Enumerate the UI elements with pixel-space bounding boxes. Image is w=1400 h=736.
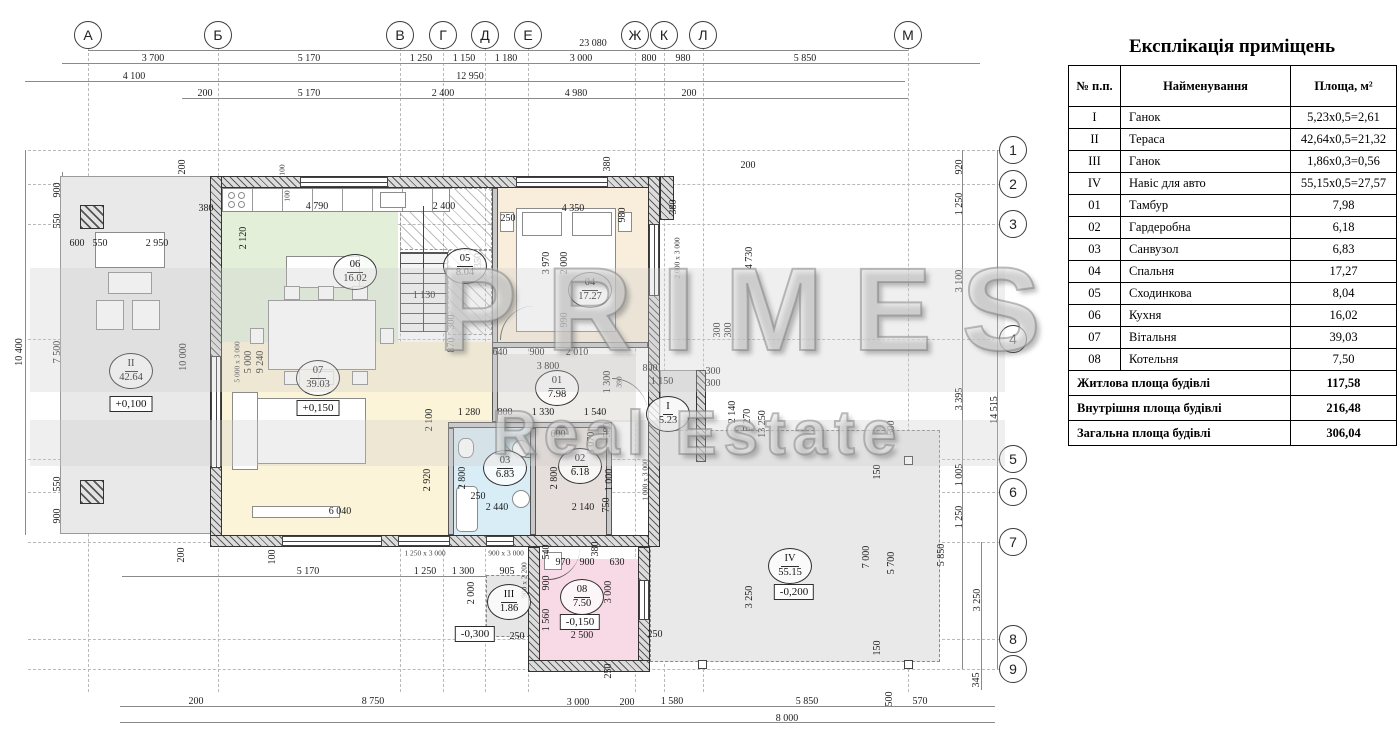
dimension-line bbox=[120, 722, 995, 723]
dimension-label: 1 280 bbox=[458, 408, 481, 418]
window bbox=[398, 536, 450, 546]
table-cell: Навіс для авто bbox=[1121, 173, 1291, 195]
axis-circle-top: Ж bbox=[621, 21, 649, 49]
table-cell: Котельня bbox=[1121, 349, 1291, 371]
axis-circle-top: К bbox=[650, 21, 678, 49]
summary-value: 306,04 bbox=[1291, 421, 1397, 446]
pillow bbox=[522, 212, 562, 236]
dimension-line bbox=[88, 50, 908, 51]
table-cell: Санвузол bbox=[1121, 239, 1291, 261]
axis-circle-right: 7 bbox=[999, 528, 1027, 556]
dimension-label: 200 bbox=[189, 697, 204, 707]
room-label: III1.86 bbox=[487, 584, 531, 620]
table-row: 01Тамбур7,98 bbox=[1069, 195, 1397, 217]
dimension-label: 900 bbox=[542, 576, 552, 591]
dimension-label: 250 bbox=[604, 664, 614, 679]
summary-label: Житлова площа будівлі bbox=[1069, 371, 1291, 396]
kitchen-sink bbox=[380, 192, 406, 208]
floor-plan-sheet: 23 0803 7005 1701 2501 1501 1803 0008009… bbox=[0, 0, 1400, 736]
dimension-label: 12 950 bbox=[456, 72, 484, 82]
dimension-label: 570 bbox=[913, 697, 928, 707]
table-cell: 1,86x0,3=0,56 bbox=[1291, 151, 1397, 173]
dimension-label: 3 700 bbox=[142, 54, 165, 64]
room-area: 1.86 bbox=[500, 603, 518, 615]
dimension-label: 4 100 bbox=[123, 72, 146, 82]
dimension-label: 550 bbox=[53, 477, 63, 492]
table-summary-row: Внутрішня площа будівлі216,48 bbox=[1069, 396, 1397, 421]
dimension-label: 200 bbox=[198, 89, 213, 99]
dimension-label: 8 750 bbox=[362, 697, 385, 707]
table-row: 07Вітальня39,03 bbox=[1069, 327, 1397, 349]
dimension-label: 1 250 bbox=[414, 567, 437, 577]
dimension-label: 800 bbox=[642, 54, 657, 64]
dimension-label: 5 170 bbox=[298, 54, 321, 64]
dimension-label: 1 250 bbox=[955, 193, 965, 216]
dimension-label: 8 000 bbox=[776, 714, 799, 724]
dimension-label: 980 bbox=[618, 208, 628, 223]
carport-column bbox=[904, 660, 913, 669]
dimension-label: 5 170 bbox=[297, 567, 320, 577]
axis-circle-right: 8 bbox=[999, 625, 1027, 653]
dimension-label: 200 bbox=[620, 698, 635, 708]
axis-circle-top: Г bbox=[429, 21, 457, 49]
table-cell: 04 bbox=[1069, 261, 1121, 283]
table-cell: 06 bbox=[1069, 305, 1121, 327]
table-header-cell: Площа, м² bbox=[1291, 66, 1397, 107]
table-cell: Сходинкова bbox=[1121, 283, 1291, 305]
stove-burner bbox=[228, 201, 235, 208]
axis-circle-top: В bbox=[386, 21, 414, 49]
axis-circle-right: 2 bbox=[999, 170, 1027, 198]
terrace-column bbox=[80, 480, 104, 504]
dimension-label: 1 250 bbox=[955, 506, 965, 529]
watermark-subtext: Real Estate bbox=[492, 398, 903, 469]
dimension-label: 250 bbox=[648, 630, 663, 640]
elevation-label: -0,150 bbox=[560, 614, 600, 630]
dimension-label: 380 bbox=[199, 204, 214, 214]
dimension-label: 5 850 bbox=[796, 697, 819, 707]
table-cell: 5,23x0,5=2,61 bbox=[1291, 107, 1397, 129]
dimension-label: 7 000 bbox=[862, 546, 872, 569]
boiler-wall-bottom bbox=[528, 660, 650, 672]
room-area: 6.83 bbox=[496, 469, 514, 481]
table-cell: Вітальня bbox=[1121, 327, 1291, 349]
dimension-label: 2 920 bbox=[423, 469, 433, 492]
explication-title: Експлікація приміщень bbox=[1068, 36, 1396, 58]
table-row: IVНавіс для авто55,15x0,5=27,57 bbox=[1069, 173, 1397, 195]
stove-burner bbox=[238, 201, 245, 208]
dimension-line bbox=[62, 63, 980, 64]
axis-circle-right: 6 bbox=[999, 478, 1027, 506]
table-cell: 05 bbox=[1069, 283, 1121, 305]
axis-circle-right: 9 bbox=[999, 655, 1027, 683]
dimension-label: 900 x 3 000 bbox=[488, 549, 524, 557]
dimension-label: 250 bbox=[510, 632, 525, 642]
dimension-label: 2 440 bbox=[486, 503, 509, 513]
dimension-label: 600 bbox=[70, 239, 85, 249]
dimension-label: 900 bbox=[580, 558, 595, 568]
dimension-label: 2 140 bbox=[572, 503, 595, 513]
dimension-label: 980 bbox=[676, 54, 691, 64]
dimension-label: 3 000 bbox=[567, 698, 590, 708]
washing-machine bbox=[512, 490, 530, 508]
dimension-label: 1 300 bbox=[452, 567, 475, 577]
dimension-label: 4 980 bbox=[565, 89, 588, 99]
summary-label: Внутрішня площа будівлі bbox=[1069, 396, 1291, 421]
dimension-label: 23 080 bbox=[579, 39, 607, 49]
dimension-label: 1 005 bbox=[955, 464, 965, 487]
stove-burner bbox=[228, 192, 235, 199]
dimension-label: 200 bbox=[178, 160, 188, 175]
table-row: 06Кухня16,02 bbox=[1069, 305, 1397, 327]
room-number: IV bbox=[781, 553, 798, 566]
pillow bbox=[572, 212, 612, 236]
dimension-label: 10 400 bbox=[15, 338, 25, 366]
table-row: IГанок5,23x0,5=2,61 bbox=[1069, 107, 1397, 129]
axis-circle-right: 3 bbox=[999, 210, 1027, 238]
table-cell: 6,18 bbox=[1291, 217, 1397, 239]
dimension-line bbox=[122, 576, 540, 577]
dimension-label: 970 bbox=[556, 558, 571, 568]
grid-line bbox=[28, 669, 1000, 670]
table-row: IIТераса42,64x0,5=21,32 bbox=[1069, 129, 1397, 151]
dimension-label: 100 bbox=[283, 190, 291, 201]
dimension-label: 200 bbox=[741, 161, 756, 171]
table-cell: 01 bbox=[1069, 195, 1121, 217]
table-cell: 02 bbox=[1069, 217, 1121, 239]
table-cell: 16,02 bbox=[1291, 305, 1397, 327]
dimension-label: 250 bbox=[501, 214, 516, 224]
room-area: 7.50 bbox=[573, 598, 591, 610]
table-cell: 7,50 bbox=[1291, 349, 1397, 371]
summary-value: 216,48 bbox=[1291, 396, 1397, 421]
dimension-label: 2 120 bbox=[239, 227, 249, 250]
carport-column bbox=[698, 660, 707, 669]
dimension-label: 500 bbox=[885, 692, 895, 707]
dimension-label: 345 bbox=[972, 673, 982, 688]
dimension-label: 380 bbox=[669, 200, 679, 215]
window bbox=[516, 177, 608, 187]
dimension-line bbox=[120, 706, 995, 707]
axis-circle-top: М bbox=[894, 21, 922, 49]
axis-circle-top: Е bbox=[514, 21, 542, 49]
table-cell: 8,04 bbox=[1291, 283, 1397, 305]
explication-panel: Експлікація приміщень № п.п.Найменування… bbox=[1068, 36, 1396, 446]
dimension-label: 2 400 bbox=[432, 89, 455, 99]
watermark-brand-text: PRIMES bbox=[438, 242, 1070, 378]
window bbox=[282, 536, 382, 546]
dimension-label: 550 bbox=[53, 214, 63, 229]
dimension-label: 1 580 bbox=[661, 697, 684, 707]
dimension-label: 100 bbox=[278, 164, 286, 175]
table-cell: IV bbox=[1069, 173, 1121, 195]
kitchen-counter bbox=[222, 188, 450, 212]
dimension-label: 3 250 bbox=[745, 586, 755, 609]
dimension-label: 2 800 bbox=[458, 467, 468, 490]
window bbox=[639, 580, 649, 620]
table-row: 05Сходинкова8,04 bbox=[1069, 283, 1397, 305]
dimension-label: 2 000 bbox=[467, 582, 477, 605]
dimension-label: 4 350 bbox=[562, 204, 585, 214]
dimension-label: 150 bbox=[873, 641, 883, 656]
dimension-line bbox=[25, 150, 26, 535]
table-cell: 6,83 bbox=[1291, 239, 1397, 261]
room-area: 55.15 bbox=[778, 567, 802, 579]
elevation-label: +0,150 bbox=[297, 400, 340, 416]
summary-value: 117,58 bbox=[1291, 371, 1397, 396]
summary-label: Загальна площа будівлі bbox=[1069, 421, 1291, 446]
dimension-label: 3 250 bbox=[973, 589, 983, 612]
dimension-label: 750 bbox=[602, 498, 612, 513]
table-cell: II bbox=[1069, 129, 1121, 151]
dimension-line bbox=[981, 542, 982, 690]
room-number: III bbox=[501, 589, 518, 602]
dimension-label: 920 bbox=[955, 160, 965, 175]
table-cell: 07 bbox=[1069, 327, 1121, 349]
table-cell: 03 bbox=[1069, 239, 1121, 261]
table-row: 08Котельня7,50 bbox=[1069, 349, 1397, 371]
grid-line bbox=[28, 150, 1000, 151]
dimension-label: 5 170 bbox=[298, 89, 321, 99]
axis-circle-top: А bbox=[74, 21, 102, 49]
dimension-label: 1 150 bbox=[453, 54, 476, 64]
window bbox=[300, 177, 388, 187]
table-header-cell: № п.п. bbox=[1069, 66, 1121, 107]
dimension-label: 5 850 bbox=[937, 544, 947, 567]
dimension-label: 2 950 bbox=[146, 239, 169, 249]
dimension-label: 3 000 bbox=[570, 54, 593, 64]
table-cell: Ганок bbox=[1121, 107, 1291, 129]
table-row: 03Санвузол6,83 bbox=[1069, 239, 1397, 261]
window bbox=[486, 536, 514, 546]
table-cell: 39,03 bbox=[1291, 327, 1397, 349]
table-cell: III bbox=[1069, 151, 1121, 173]
table-row: IIIГанок1,86x0,3=0,56 bbox=[1069, 151, 1397, 173]
axis-circle-top: Л bbox=[689, 21, 717, 49]
elevation-label: -0,300 bbox=[455, 626, 495, 642]
table-cell: Тераса bbox=[1121, 129, 1291, 151]
table-cell: Тамбур bbox=[1121, 195, 1291, 217]
dimension-label: 5 700 bbox=[887, 552, 897, 575]
tv-stand bbox=[252, 506, 340, 518]
room-number: 08 bbox=[574, 584, 591, 597]
dimension-label: 100 bbox=[268, 550, 278, 565]
dimension-label: 6 040 bbox=[329, 507, 352, 517]
dimension-label: 200 bbox=[682, 89, 697, 99]
dimension-label: 380 bbox=[603, 157, 613, 172]
table-header-cell: Найменування bbox=[1121, 66, 1291, 107]
dimension-label: 1 250 bbox=[410, 54, 433, 64]
dimension-label: 900 bbox=[53, 183, 63, 198]
elevation-label: -0,200 bbox=[774, 584, 814, 600]
dimension-label: 5 850 bbox=[794, 54, 817, 64]
elevation-label: +0,100 bbox=[110, 396, 153, 412]
dimension-label: 200 bbox=[177, 548, 187, 563]
table-cell: 55,15x0,5=27,57 bbox=[1291, 173, 1397, 195]
table-cell: Ганок bbox=[1121, 151, 1291, 173]
dimension-label: 4 790 bbox=[306, 202, 329, 212]
table-cell: Кухня bbox=[1121, 305, 1291, 327]
boiler-wall-left bbox=[528, 547, 540, 672]
dimension-label: 540 bbox=[542, 545, 552, 560]
axis-circle-top: Б bbox=[204, 21, 232, 49]
dimension-line bbox=[182, 98, 908, 99]
dimension-label: 2 400 bbox=[433, 202, 456, 212]
dimension-label: 900 bbox=[53, 509, 63, 524]
dimension-label: 1 560 bbox=[542, 609, 552, 632]
table-summary-row: Загальна площа будівлі306,04 bbox=[1069, 421, 1397, 446]
table-cell: 17,27 bbox=[1291, 261, 1397, 283]
room-label: 087.50 bbox=[560, 579, 604, 615]
table-cell: 42,64x0,5=21,32 bbox=[1291, 129, 1397, 151]
table-cell: I bbox=[1069, 107, 1121, 129]
table-cell: 7,98 bbox=[1291, 195, 1397, 217]
dimension-label: 380 bbox=[591, 542, 601, 557]
room-label: IV55.15 bbox=[768, 548, 812, 584]
table-cell: 08 bbox=[1069, 349, 1121, 371]
dimension-label: 250 bbox=[471, 492, 486, 502]
dimension-label: 3 000 bbox=[604, 581, 614, 604]
explication-table: № п.п.НайменуванняПлоща, м² IГанок5,23x0… bbox=[1068, 65, 1397, 446]
table-cell: Спальня bbox=[1121, 261, 1291, 283]
dimension-label: 905 bbox=[500, 567, 515, 577]
dimension-label: 1 180 bbox=[495, 54, 518, 64]
terrace-column bbox=[80, 205, 104, 229]
axis-circle-top: Д bbox=[471, 21, 499, 49]
table-summary-row: Житлова площа будівлі117,58 bbox=[1069, 371, 1397, 396]
dimension-label: 550 bbox=[93, 239, 108, 249]
table-row: 02Гардеробна6,18 bbox=[1069, 217, 1397, 239]
axis-circle-right: 1 bbox=[999, 136, 1027, 164]
table-cell: Гардеробна bbox=[1121, 217, 1291, 239]
dimension-label: 2 500 bbox=[571, 631, 594, 641]
dimension-label: 1 250 x 3 000 bbox=[404, 549, 445, 557]
table-row: 04Спальня17,27 bbox=[1069, 261, 1397, 283]
dimension-label: 630 bbox=[610, 558, 625, 568]
dimension-label: 1 000 bbox=[605, 469, 615, 492]
stove-burner bbox=[238, 192, 245, 199]
